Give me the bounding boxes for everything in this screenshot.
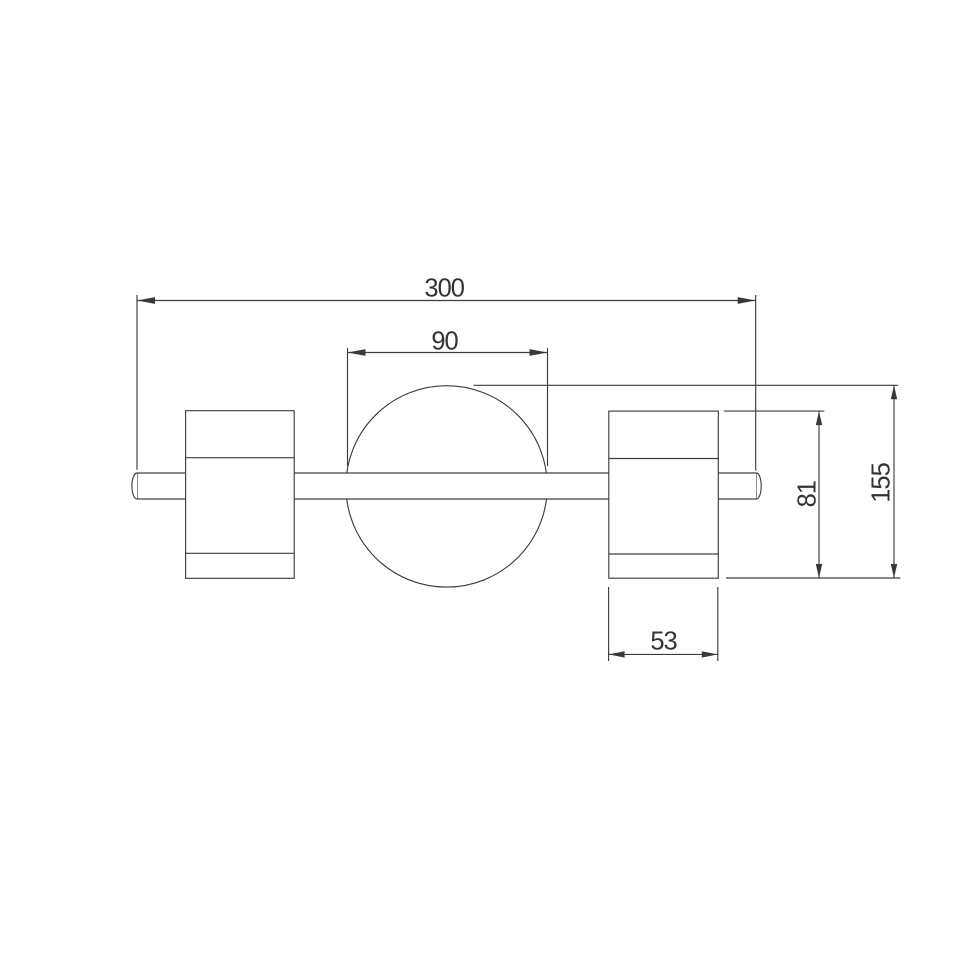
svg-text:81: 81 xyxy=(794,481,822,507)
svg-text:155: 155 xyxy=(868,462,896,502)
svg-text:53: 53 xyxy=(650,627,677,655)
svg-text:300: 300 xyxy=(424,275,464,303)
svg-text:90: 90 xyxy=(431,327,458,355)
